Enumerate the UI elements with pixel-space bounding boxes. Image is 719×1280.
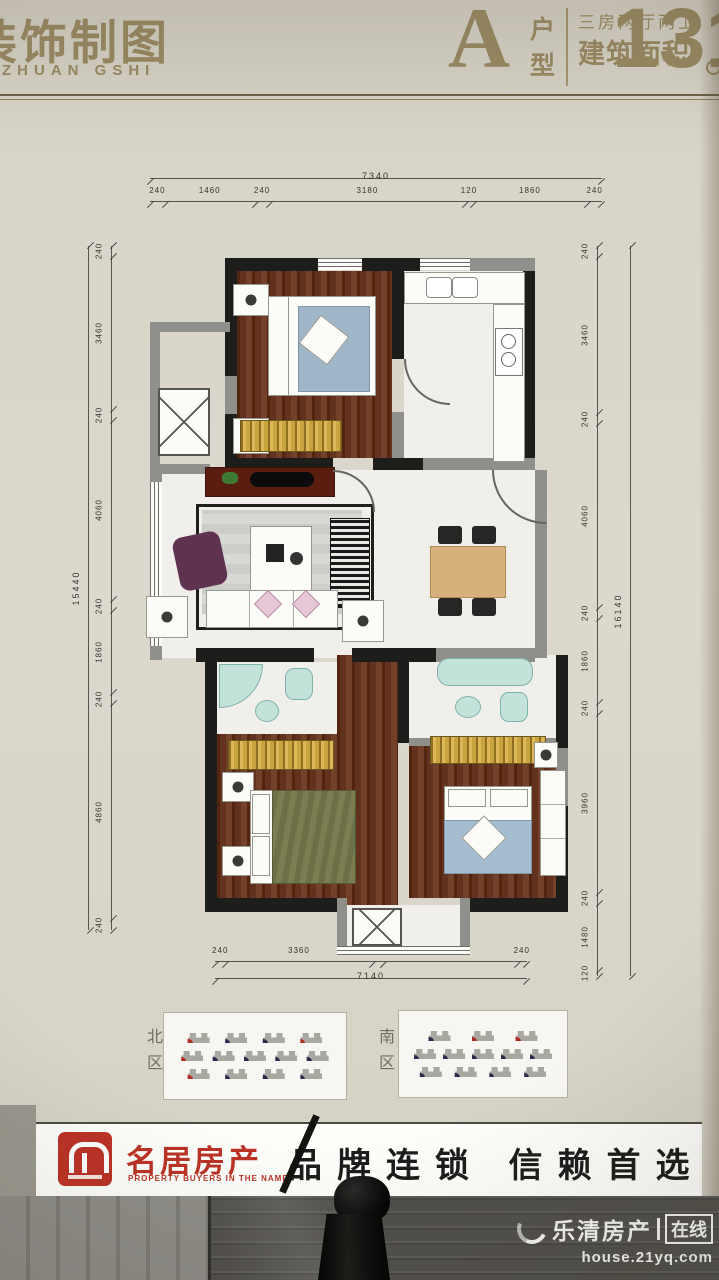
building-number-badge bbox=[221, 1075, 230, 1084]
dimension-segment: 240 bbox=[98, 600, 111, 611]
dimension-segment: 3460 bbox=[98, 257, 111, 410]
dimension-segment: 240 bbox=[98, 693, 111, 704]
building-number-badge bbox=[303, 1057, 312, 1066]
building-icon bbox=[524, 1067, 546, 1077]
dimension-value: 4860 bbox=[95, 801, 104, 823]
building-row bbox=[172, 1051, 338, 1061]
watermark-site-name: 乐清房产 bbox=[552, 1212, 652, 1246]
window-strip bbox=[318, 258, 362, 270]
pillow bbox=[490, 789, 528, 807]
dimension-segment: 4060 bbox=[98, 421, 111, 601]
table-decor bbox=[266, 544, 284, 562]
building-number-badge bbox=[468, 1037, 477, 1046]
dimension-segment: 1860 bbox=[473, 188, 588, 201]
building-number-badge bbox=[177, 1057, 186, 1066]
dimension-segment: 4860 bbox=[98, 704, 111, 919]
building-icon bbox=[420, 1067, 442, 1077]
dining-chair bbox=[472, 526, 496, 544]
dimension-segment: 240 bbox=[215, 948, 225, 961]
wall-segment bbox=[205, 898, 337, 912]
building-icon bbox=[275, 1051, 297, 1061]
dimension-value: 240 bbox=[95, 916, 104, 932]
wall-segment bbox=[205, 655, 217, 910]
wall-segment bbox=[225, 376, 237, 414]
building-number-badge bbox=[296, 1039, 305, 1048]
toilet bbox=[500, 692, 528, 722]
dimension-chain-left: 2403460240406024018602404860240 bbox=[98, 246, 112, 930]
wall-segment bbox=[150, 470, 162, 482]
building-icon bbox=[414, 1049, 436, 1059]
tv bbox=[250, 472, 314, 487]
stove-burner bbox=[501, 352, 516, 367]
dimension-segment: 240 bbox=[255, 188, 270, 201]
dimension-value: 120 bbox=[581, 965, 590, 981]
kitchen-sink bbox=[452, 277, 478, 298]
building-icon bbox=[300, 1069, 322, 1079]
pillow bbox=[252, 836, 270, 876]
site-plan-south bbox=[398, 1010, 568, 1098]
dimension-value: 1860 bbox=[519, 186, 541, 195]
dimension-segment: 240 bbox=[98, 246, 111, 257]
dimension-segment: 240 bbox=[584, 608, 597, 619]
building-number-badge bbox=[259, 1039, 268, 1048]
dimension-segment: 240 bbox=[584, 246, 597, 257]
dimension-segment: 240 bbox=[517, 948, 527, 961]
dimension-segment: 240 bbox=[587, 188, 602, 201]
wall-segment bbox=[470, 258, 535, 271]
building-number-badge bbox=[451, 1073, 460, 1082]
building-row bbox=[407, 1067, 559, 1077]
building-icon bbox=[263, 1033, 285, 1043]
building-icon bbox=[443, 1049, 465, 1059]
building-icon bbox=[489, 1067, 511, 1077]
wall-segment bbox=[150, 322, 230, 332]
dimension-value: 3960 bbox=[581, 792, 590, 814]
closet-cabinet bbox=[233, 284, 269, 316]
stove-burner bbox=[501, 334, 516, 349]
wall-segment bbox=[225, 258, 318, 271]
watermark-crescent-icon bbox=[513, 1210, 551, 1248]
wall-segment bbox=[392, 271, 404, 359]
header-divider bbox=[566, 8, 568, 86]
building-icon bbox=[225, 1069, 247, 1079]
dimension-segment: 120 bbox=[584, 971, 597, 976]
table-decor bbox=[290, 552, 303, 565]
dimension-segment: 240 bbox=[584, 893, 597, 904]
plant bbox=[222, 472, 238, 484]
dimension-value: 3180 bbox=[356, 186, 378, 195]
building-icon bbox=[472, 1031, 494, 1041]
dimension-segment: 3960 bbox=[584, 714, 597, 893]
building-icon bbox=[516, 1031, 538, 1041]
dimension-overall-left: 15440 bbox=[76, 246, 89, 930]
pillow bbox=[252, 794, 270, 834]
dimension-value: 1460 bbox=[199, 186, 221, 195]
building-number-badge bbox=[497, 1055, 506, 1064]
dimension-segment: 1460 bbox=[165, 188, 255, 201]
unit-type-label: 户型 bbox=[530, 12, 558, 85]
building-number-badge bbox=[485, 1073, 494, 1082]
mingju-logo-icon bbox=[58, 1132, 112, 1186]
dimension-value: 3460 bbox=[95, 322, 104, 344]
dimension-segment: 3180 bbox=[269, 188, 465, 201]
building-icon bbox=[188, 1069, 210, 1079]
building-icon bbox=[501, 1049, 523, 1059]
washer bbox=[352, 908, 402, 946]
storage-cabinet bbox=[540, 770, 566, 876]
studio-subtitle: ZHUAN GSHI bbox=[2, 62, 155, 79]
building-number-badge bbox=[410, 1055, 419, 1064]
building-number-badge bbox=[259, 1075, 268, 1084]
wall-segment bbox=[352, 648, 436, 662]
wall-segment bbox=[556, 655, 568, 750]
wardrobe bbox=[430, 736, 546, 764]
watermark-url: house.21yq.com bbox=[517, 1249, 713, 1266]
dimension-value: 1860 bbox=[95, 641, 104, 663]
building-row bbox=[407, 1031, 559, 1041]
master-bed-blanket bbox=[272, 790, 356, 884]
dimension-segment: 4060 bbox=[584, 424, 597, 608]
board-edge-shadow bbox=[699, 0, 719, 1196]
dimension-value: 240 bbox=[149, 186, 165, 195]
building-row bbox=[172, 1069, 338, 1079]
building-number-badge bbox=[439, 1055, 448, 1064]
dimension-segment: 240 bbox=[98, 919, 111, 930]
background-door bbox=[0, 1196, 211, 1280]
logo-arch-shape bbox=[69, 1142, 109, 1173]
watermark-divider bbox=[657, 1218, 660, 1240]
wall-segment bbox=[398, 655, 409, 743]
elevator-shaft bbox=[158, 388, 210, 456]
building-number-badge bbox=[184, 1075, 193, 1084]
dimension-segment: 1860 bbox=[98, 611, 111, 693]
site-plan-north bbox=[163, 1012, 347, 1100]
pillow bbox=[448, 789, 486, 807]
side-table-lamp bbox=[342, 600, 384, 642]
bathtub bbox=[437, 658, 533, 686]
site-plan-south-label: 南区 bbox=[372, 1028, 396, 1080]
wardrobe bbox=[228, 740, 334, 770]
dimension-value: 240 bbox=[586, 186, 602, 195]
building-row bbox=[172, 1033, 338, 1043]
dimension-segment: 240 bbox=[584, 703, 597, 714]
kitchen-sink bbox=[426, 277, 452, 298]
side-table-lamp bbox=[146, 596, 188, 638]
building-number-badge bbox=[520, 1073, 529, 1082]
dining-chair bbox=[438, 598, 462, 616]
building-icon bbox=[181, 1051, 203, 1061]
dimension-segment: 240 bbox=[150, 188, 165, 201]
dimension-segment: 1480 bbox=[584, 904, 597, 971]
building-icon bbox=[188, 1033, 210, 1043]
dimension-chain-top: 240146024031801201860240 bbox=[150, 188, 602, 202]
building-number-badge bbox=[240, 1057, 249, 1066]
dimension-segment: 120 bbox=[465, 188, 472, 201]
dimension-value: 240 bbox=[514, 946, 530, 955]
building-number-badge bbox=[296, 1075, 305, 1084]
unit-letter: A bbox=[448, 0, 510, 88]
window-strip bbox=[337, 946, 470, 955]
bath-sink bbox=[255, 700, 279, 722]
site-plan-north-label: 北区 bbox=[140, 1028, 164, 1080]
building-icon bbox=[472, 1049, 494, 1059]
building-icon bbox=[263, 1069, 285, 1079]
dining-table bbox=[430, 546, 506, 598]
dimension-value: 1480 bbox=[581, 926, 590, 948]
building-number-badge bbox=[468, 1055, 477, 1064]
building-icon bbox=[225, 1033, 247, 1043]
bed1-headboard bbox=[268, 296, 290, 396]
watermark: 乐清房产 在线 house.21yq.com bbox=[517, 1212, 713, 1266]
building-row bbox=[407, 1049, 559, 1059]
building-number-badge bbox=[526, 1055, 535, 1064]
toilet bbox=[285, 668, 313, 700]
dimension-segment: 240 bbox=[98, 410, 111, 421]
company-tagline: PROPERTY BUYERS IN THE NAME bbox=[128, 1174, 289, 1183]
wall-segment bbox=[362, 258, 420, 271]
dimension-segment: 240 bbox=[584, 413, 597, 424]
wall-segment bbox=[470, 898, 568, 912]
wall-segment bbox=[392, 412, 404, 458]
watermark-site-badge: 在线 bbox=[665, 1214, 713, 1244]
dimension-value: 3460 bbox=[581, 324, 590, 346]
dimension-overall-right: 16140 bbox=[618, 246, 631, 976]
dimension-overall-top: 7340 bbox=[150, 166, 602, 179]
header-rule bbox=[0, 94, 719, 96]
building-icon bbox=[455, 1067, 477, 1077]
building-number-badge bbox=[271, 1057, 280, 1066]
dimension-overall-bottom: 7140 bbox=[215, 966, 527, 979]
building-icon bbox=[429, 1031, 451, 1041]
bath-sink bbox=[455, 696, 481, 718]
window-strip bbox=[420, 258, 470, 270]
wall-edge bbox=[0, 1105, 36, 1196]
building-icon bbox=[307, 1051, 329, 1061]
wall-segment bbox=[337, 898, 347, 950]
dimension-segment: 3460 bbox=[584, 257, 597, 414]
building-icon bbox=[530, 1049, 552, 1059]
building-icon bbox=[244, 1051, 266, 1061]
building-icon bbox=[300, 1033, 322, 1043]
building-number-badge bbox=[512, 1037, 521, 1046]
wardrobe bbox=[240, 420, 342, 452]
wall-segment bbox=[373, 458, 423, 470]
building-number-badge bbox=[416, 1073, 425, 1082]
dimension-value: 3360 bbox=[288, 946, 310, 955]
dimension-value: 1860 bbox=[581, 650, 590, 672]
poster-photo: 装饰制图 ZHUAN GSHI A 户型 三房两厅两卫 建筑面积 131 734… bbox=[0, 0, 719, 1280]
dining-chair bbox=[472, 598, 496, 616]
logo-base-shape bbox=[68, 1175, 102, 1179]
dimension-segment: 1860 bbox=[584, 619, 597, 703]
dining-chair bbox=[438, 526, 462, 544]
header-rule bbox=[0, 99, 719, 100]
building-number-badge bbox=[209, 1057, 218, 1066]
stand-pole bbox=[318, 1214, 390, 1280]
wall-segment bbox=[150, 646, 162, 660]
dimension-value: 4060 bbox=[581, 505, 590, 527]
building-icon bbox=[213, 1051, 235, 1061]
dimension-value: 240 bbox=[254, 186, 270, 195]
dimension-value: 4060 bbox=[95, 500, 104, 522]
building-number-badge bbox=[425, 1037, 434, 1046]
building-number-badge bbox=[221, 1039, 230, 1048]
nightstand bbox=[534, 742, 558, 768]
wall-segment bbox=[460, 898, 470, 950]
dimension-chain-right: 24034602404060240186024039602401480120 bbox=[584, 246, 598, 976]
building-number-badge bbox=[184, 1039, 193, 1048]
